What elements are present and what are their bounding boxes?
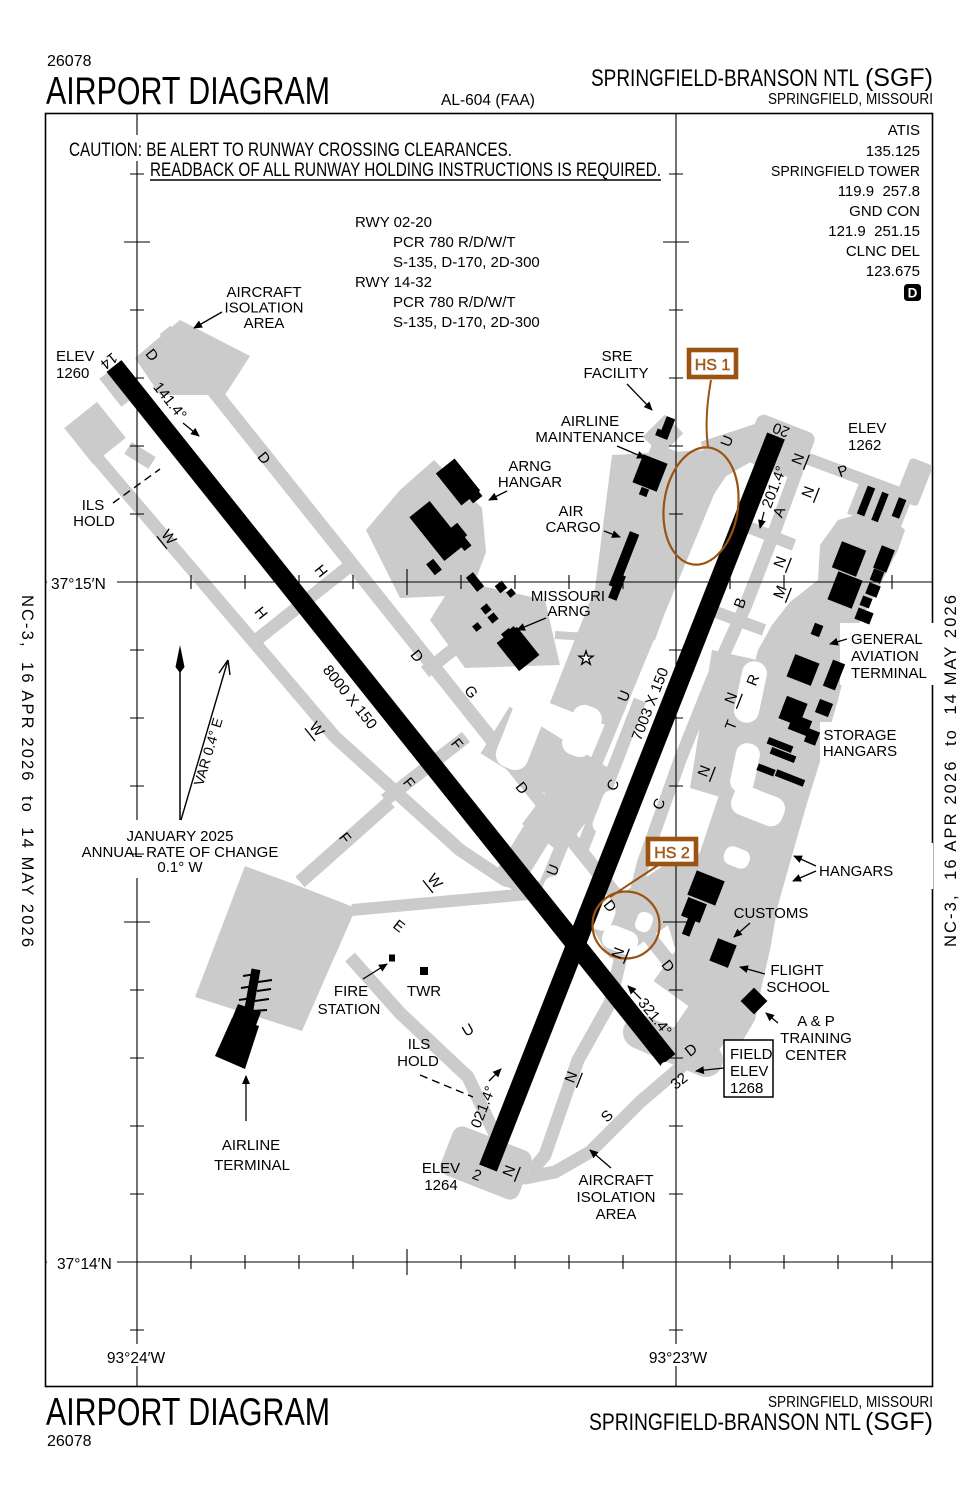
svg-text:SPRINGFIELD, MISSOURI: SPRINGFIELD, MISSOURI [768,91,933,108]
svg-text:FACILITY: FACILITY [583,365,648,382]
svg-text:NC-3, 16 APR 2026 to 14 MAY: NC-3, 16 APR 2026 to 14 MAY 2026 [18,595,36,947]
svg-text:ELEV: ELEV [730,1063,768,1080]
svg-text:37°15′N: 37°15′N [51,576,106,593]
svg-text:AIRLINE: AIRLINE [561,413,619,430]
svg-text:RWY 14-32: RWY 14-32 [355,274,432,291]
svg-text:TRAINING: TRAINING [780,1030,852,1047]
svg-text:D: D [908,286,918,301]
svg-text:HS 2: HS 2 [654,845,690,862]
svg-text:S-135, D-170, 2D-300: S-135, D-170, 2D-300 [393,314,540,331]
svg-text:SCHOOL: SCHOOL [766,979,829,996]
svg-text:CARGO: CARGO [545,519,600,536]
svg-text:ISOLATION: ISOLATION [577,1189,656,1206]
svg-text:SRE: SRE [602,348,633,365]
svg-text:1260: 1260 [56,365,89,382]
svg-text:CENTER: CENTER [785,1047,847,1064]
svg-text:ARNG: ARNG [547,603,590,620]
svg-text:READBACK OF ALL RUNWAY HOLDING: READBACK OF ALL RUNWAY HOLDING INSTRUCTI… [150,160,661,181]
svg-text:1268: 1268 [730,1080,763,1097]
svg-text:FIELD: FIELD [730,1046,773,1063]
svg-text:ILS: ILS [82,497,105,514]
svg-text:ELEV: ELEV [848,420,886,437]
svg-text:RWY 02-20: RWY 02-20 [355,214,432,231]
svg-text:PCR 780 R/D/W/T: PCR 780 R/D/W/T [393,234,516,251]
svg-text:HANGARS: HANGARS [823,743,897,760]
svg-text:FLIGHT: FLIGHT [770,962,823,979]
svg-text:CLNC DEL: CLNC DEL [846,243,920,260]
svg-text:GENERAL: GENERAL [851,631,923,648]
svg-text:TWR: TWR [407,983,441,1000]
svg-text:SPRINGFIELD TOWER: SPRINGFIELD TOWER [771,163,920,180]
svg-text:HANGARS: HANGARS [819,863,893,880]
svg-text:SPRINGFIELD-BRANSON NTL: SPRINGFIELD-BRANSON NTL [589,1409,861,1436]
svg-text:1262: 1262 [848,437,881,454]
svg-text:HOLD: HOLD [397,1053,439,1070]
svg-text:AIRCRAFT: AIRCRAFT [579,1172,654,1189]
svg-text:HANGAR: HANGAR [498,474,562,491]
svg-text:NC-3, 16 APR 2026 to 14 MAY: NC-3, 16 APR 2026 to 14 MAY 2026 [942,595,960,947]
svg-text:HS 1: HS 1 [695,357,731,374]
svg-text:93°23′W: 93°23′W [649,1350,708,1367]
svg-text:ELEV: ELEV [56,348,94,365]
svg-text:S-135, D-170, 2D-300: S-135, D-170, 2D-300 [393,254,540,271]
svg-text:STORAGE: STORAGE [823,727,896,744]
svg-text:AREA: AREA [596,1206,637,1223]
svg-text:(SGF): (SGF) [865,1408,933,1436]
svg-text:123.675: 123.675 [866,263,920,280]
svg-text:AIR: AIR [558,503,583,520]
svg-text:121.9 251.15: 121.9 251.15 [828,223,920,240]
svg-text:AIRCRAFT: AIRCRAFT [227,284,302,301]
svg-text:1264: 1264 [424,1177,457,1194]
svg-text:26078: 26078 [47,1433,92,1450]
svg-text:SPRINGFIELD-BRANSON NTL: SPRINGFIELD-BRANSON NTL [591,65,859,92]
svg-text:ILS: ILS [408,1036,431,1053]
svg-text:ELEV: ELEV [422,1160,460,1177]
svg-text:FIRE: FIRE [334,983,368,1000]
svg-text:CUSTOMS: CUSTOMS [734,905,809,922]
svg-text:ISOLATION: ISOLATION [225,300,304,317]
svg-text:TERMINAL: TERMINAL [851,665,927,682]
svg-text:AIRPORT DIAGRAM: AIRPORT DIAGRAM [46,70,330,113]
svg-text:26078: 26078 [47,53,92,70]
svg-text:AVIATION: AVIATION [851,648,919,665]
svg-text:ATIS: ATIS [888,122,920,139]
svg-text:HOLD: HOLD [73,513,115,530]
svg-text:AREA: AREA [244,315,285,332]
svg-text:GND CON: GND CON [849,203,920,220]
svg-text:AIRPORT DIAGRAM: AIRPORT DIAGRAM [46,1391,330,1434]
svg-text:AL-604 (FAA): AL-604 (FAA) [441,92,535,109]
svg-text:JANUARY 2025: JANUARY 2025 [126,828,233,845]
svg-text:37°14′N: 37°14′N [57,1256,112,1273]
svg-text:0.1° W: 0.1° W [157,859,203,876]
svg-text:119.9 257.8: 119.9 257.8 [838,183,920,200]
svg-text:MAINTENANCE: MAINTENANCE [535,429,644,446]
svg-text:STATION: STATION [318,1001,381,1018]
svg-text:AIRLINE: AIRLINE [222,1137,280,1154]
svg-text:93°24′W: 93°24′W [107,1350,166,1367]
svg-text:A & P: A & P [797,1013,835,1030]
svg-text:(SGF): (SGF) [865,64,933,92]
svg-text:PCR 780 R/D/W/T: PCR 780 R/D/W/T [393,294,516,311]
svg-text:ARNG: ARNG [508,458,551,475]
svg-text:TERMINAL: TERMINAL [214,1157,290,1174]
svg-text:135.125: 135.125 [866,143,920,160]
svg-text:CAUTION: BE ALERT TO RUNWAY CR: CAUTION: BE ALERT TO RUNWAY CROSSING CLE… [69,140,512,161]
